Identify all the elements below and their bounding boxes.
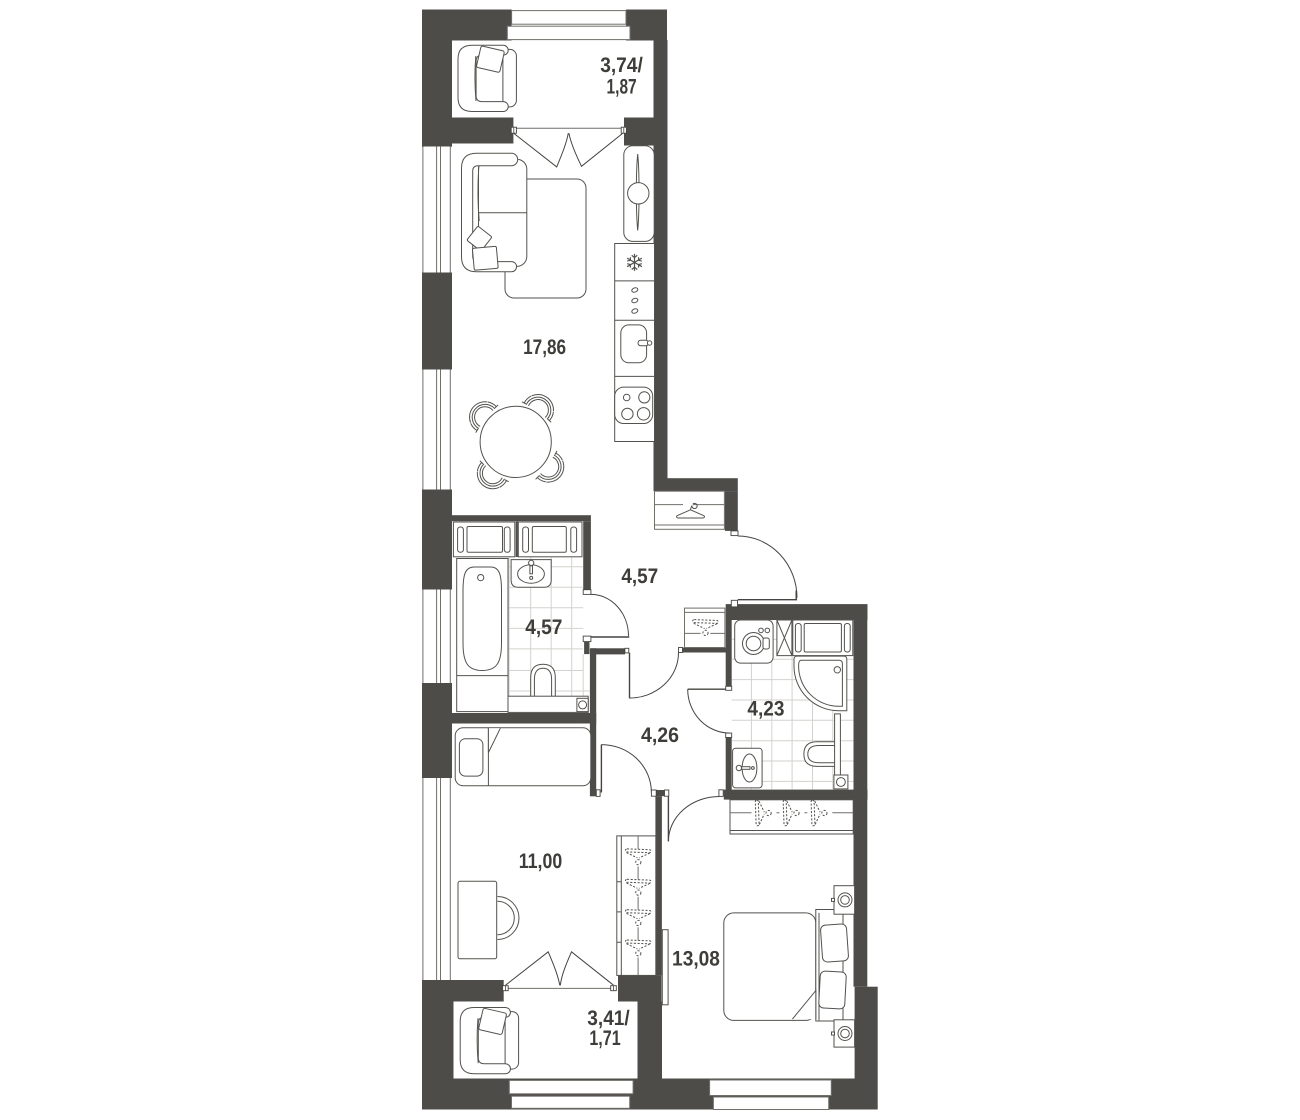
svg-text:1,87: 1,87 [607, 76, 637, 99]
svg-text:17,86: 17,86 [523, 336, 566, 359]
svg-text:4,23: 4,23 [747, 698, 784, 721]
svg-text:3,74/: 3,74/ [600, 54, 643, 77]
svg-text:13,08: 13,08 [672, 948, 720, 971]
svg-text:4,57: 4,57 [621, 565, 658, 588]
svg-text:11,00: 11,00 [519, 850, 562, 873]
svg-text:4,26: 4,26 [641, 724, 679, 747]
svg-text:4,57: 4,57 [525, 616, 562, 639]
svg-text:1,71: 1,71 [589, 1027, 621, 1050]
